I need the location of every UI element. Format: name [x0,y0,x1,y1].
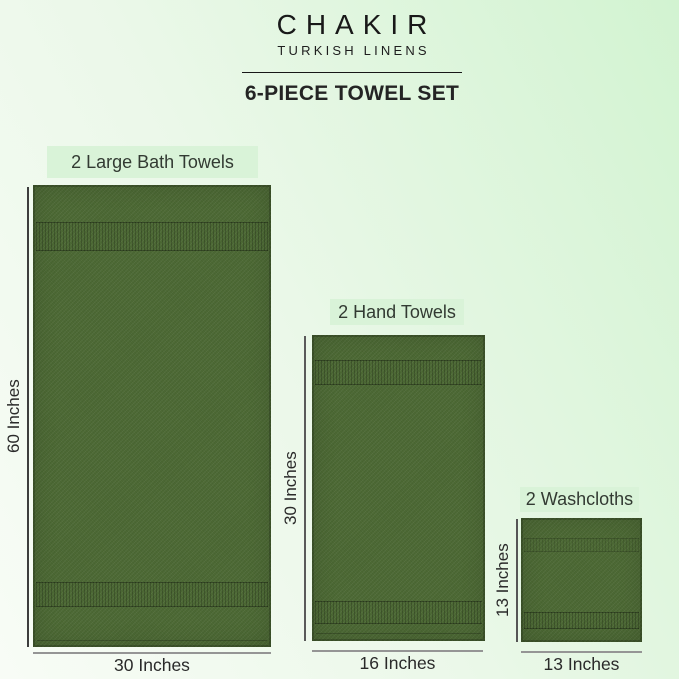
bath-width-measure-line [33,652,271,654]
washcloth-height-measure-label: 13 Inches [492,518,514,642]
hand-height-measure-line [304,336,306,641]
washcloth-bottom-band [524,612,639,629]
hand-towel-image [312,335,485,641]
brand-name: CHAKIR [242,8,471,42]
header-divider [242,72,462,73]
bath-towel-bottom-band [36,582,268,607]
washcloth-height-measure-line [516,519,518,642]
bath-towel-top-band [36,222,268,251]
hand-width-measure-line [312,650,483,652]
bath-height-measure-line [27,187,29,647]
bath-towel-image [33,185,271,647]
set-title: 6-PIECE TOWEL SET [242,82,462,106]
hand-width-measure-label: 16 Inches [312,653,483,674]
washcloth-image [521,518,642,642]
washcloths-label: 2 Washcloths [520,487,639,512]
hand-towels-label: 2 Hand Towels [330,299,464,325]
bath-towels-label: 2 Large Bath Towels [47,146,258,178]
bath-width-measure-label: 30 Inches [33,655,271,676]
washcloth-top-band [524,538,639,552]
hand-height-measure-label: 30 Inches [280,335,302,641]
hand-towel-bottom-band [315,601,482,624]
washcloth-width-measure-label: 13 Inches [521,654,642,675]
bath-towel-hem-line [37,640,267,641]
product-infographic: CHAKIR TURKISH LINENS 6-PIECE TOWEL SET … [0,0,679,679]
bath-height-measure-label: 60 Inches [2,185,26,647]
hand-towel-hem-line [316,633,481,634]
washcloth-width-measure-line [521,651,642,653]
hand-towel-top-band [315,360,482,385]
header: CHAKIR TURKISH LINENS 6-PIECE TOWEL SET [242,8,462,106]
brand-subtitle: TURKISH LINENS [242,43,465,59]
